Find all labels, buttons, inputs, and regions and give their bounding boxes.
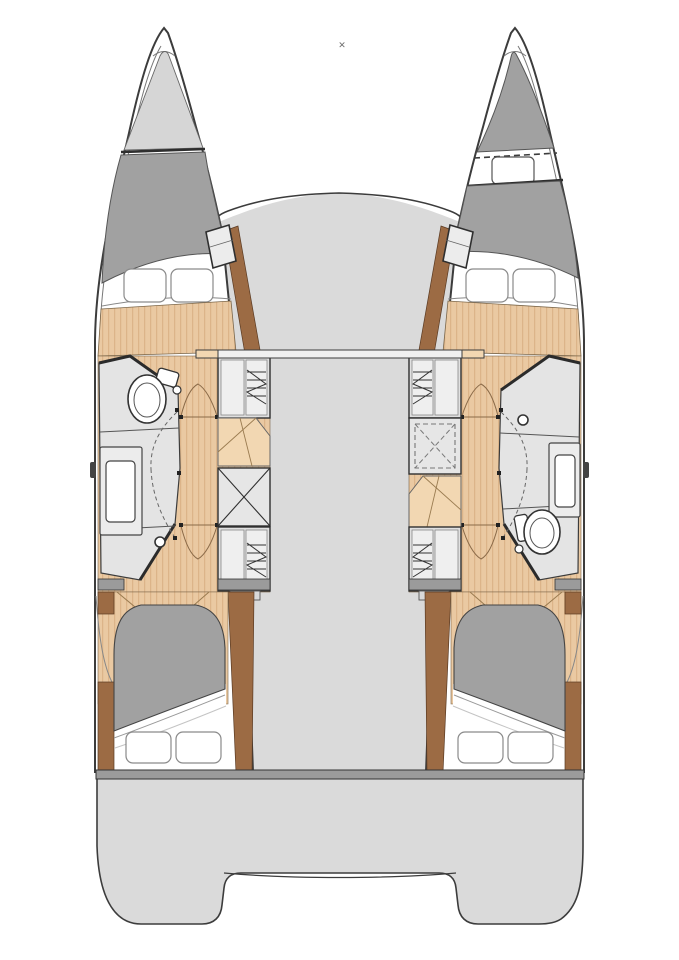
- hull-starboard-handle: [583, 462, 589, 478]
- door-hinge-dot: [177, 471, 181, 475]
- pillow: [124, 269, 166, 302]
- door-hinge-dot: [175, 408, 179, 412]
- door-hinge-dot: [173, 536, 177, 540]
- sink-icon: [549, 443, 580, 517]
- stern-platform-shape: [97, 776, 583, 924]
- stairs: [409, 476, 461, 527]
- pillow: [171, 269, 213, 302]
- sill-block: [409, 579, 461, 590]
- pillow: [176, 732, 221, 763]
- berth-trim: [98, 682, 114, 770]
- door-hinge-dot: [179, 523, 183, 527]
- berth-trim: [98, 592, 114, 614]
- toilet-icon: [514, 510, 560, 554]
- door-hinge-dot: [497, 471, 501, 475]
- hull-starboard: [409, 28, 589, 772]
- mast-beam-cap: [462, 350, 484, 358]
- sill-block: [218, 579, 270, 590]
- door-hinge-dot: [496, 523, 500, 527]
- berth-trim: [565, 592, 581, 614]
- storage-x-box: [218, 468, 270, 526]
- mast-beam-cap: [196, 350, 218, 358]
- shower-drain-icon: [518, 415, 528, 425]
- deck-hatch: [492, 157, 534, 184]
- stairs: [218, 418, 270, 466]
- port-forward-floor: [98, 301, 236, 356]
- pillow: [508, 732, 553, 763]
- wardrobe: [218, 357, 270, 418]
- sill-block: [555, 579, 581, 590]
- pillow: [458, 732, 503, 763]
- floor-plan-canvas: ✕: [0, 0, 679, 960]
- sill-block: [98, 579, 124, 590]
- wardrobe: [409, 357, 461, 418]
- door-hinge-dot: [501, 536, 505, 540]
- pillow: [126, 732, 171, 763]
- mast-beam-bar: [196, 350, 484, 358]
- stern-platform: [97, 776, 583, 924]
- pillow: [466, 269, 508, 302]
- sink-icon: [100, 447, 142, 535]
- berth-trim: [565, 682, 581, 770]
- door-hinge-dot: [499, 408, 503, 412]
- door-hinge-dot: [496, 415, 500, 419]
- pillow: [513, 269, 555, 302]
- door-hinge-dot: [179, 415, 183, 419]
- shower-drain-icon: [155, 537, 165, 547]
- port-furniture-column: [218, 357, 270, 600]
- aft-crossbeam-sill: [96, 770, 584, 779]
- floor-plan-page: ✕: [0, 0, 679, 960]
- hull-port: [90, 28, 270, 772]
- storage-x-box-dashed: [409, 418, 461, 474]
- starboard-forward-floor: [443, 301, 581, 356]
- mast-beam: [196, 350, 484, 358]
- hull-port-handle: [90, 462, 96, 478]
- center-marker-icon: ✕: [338, 41, 346, 51]
